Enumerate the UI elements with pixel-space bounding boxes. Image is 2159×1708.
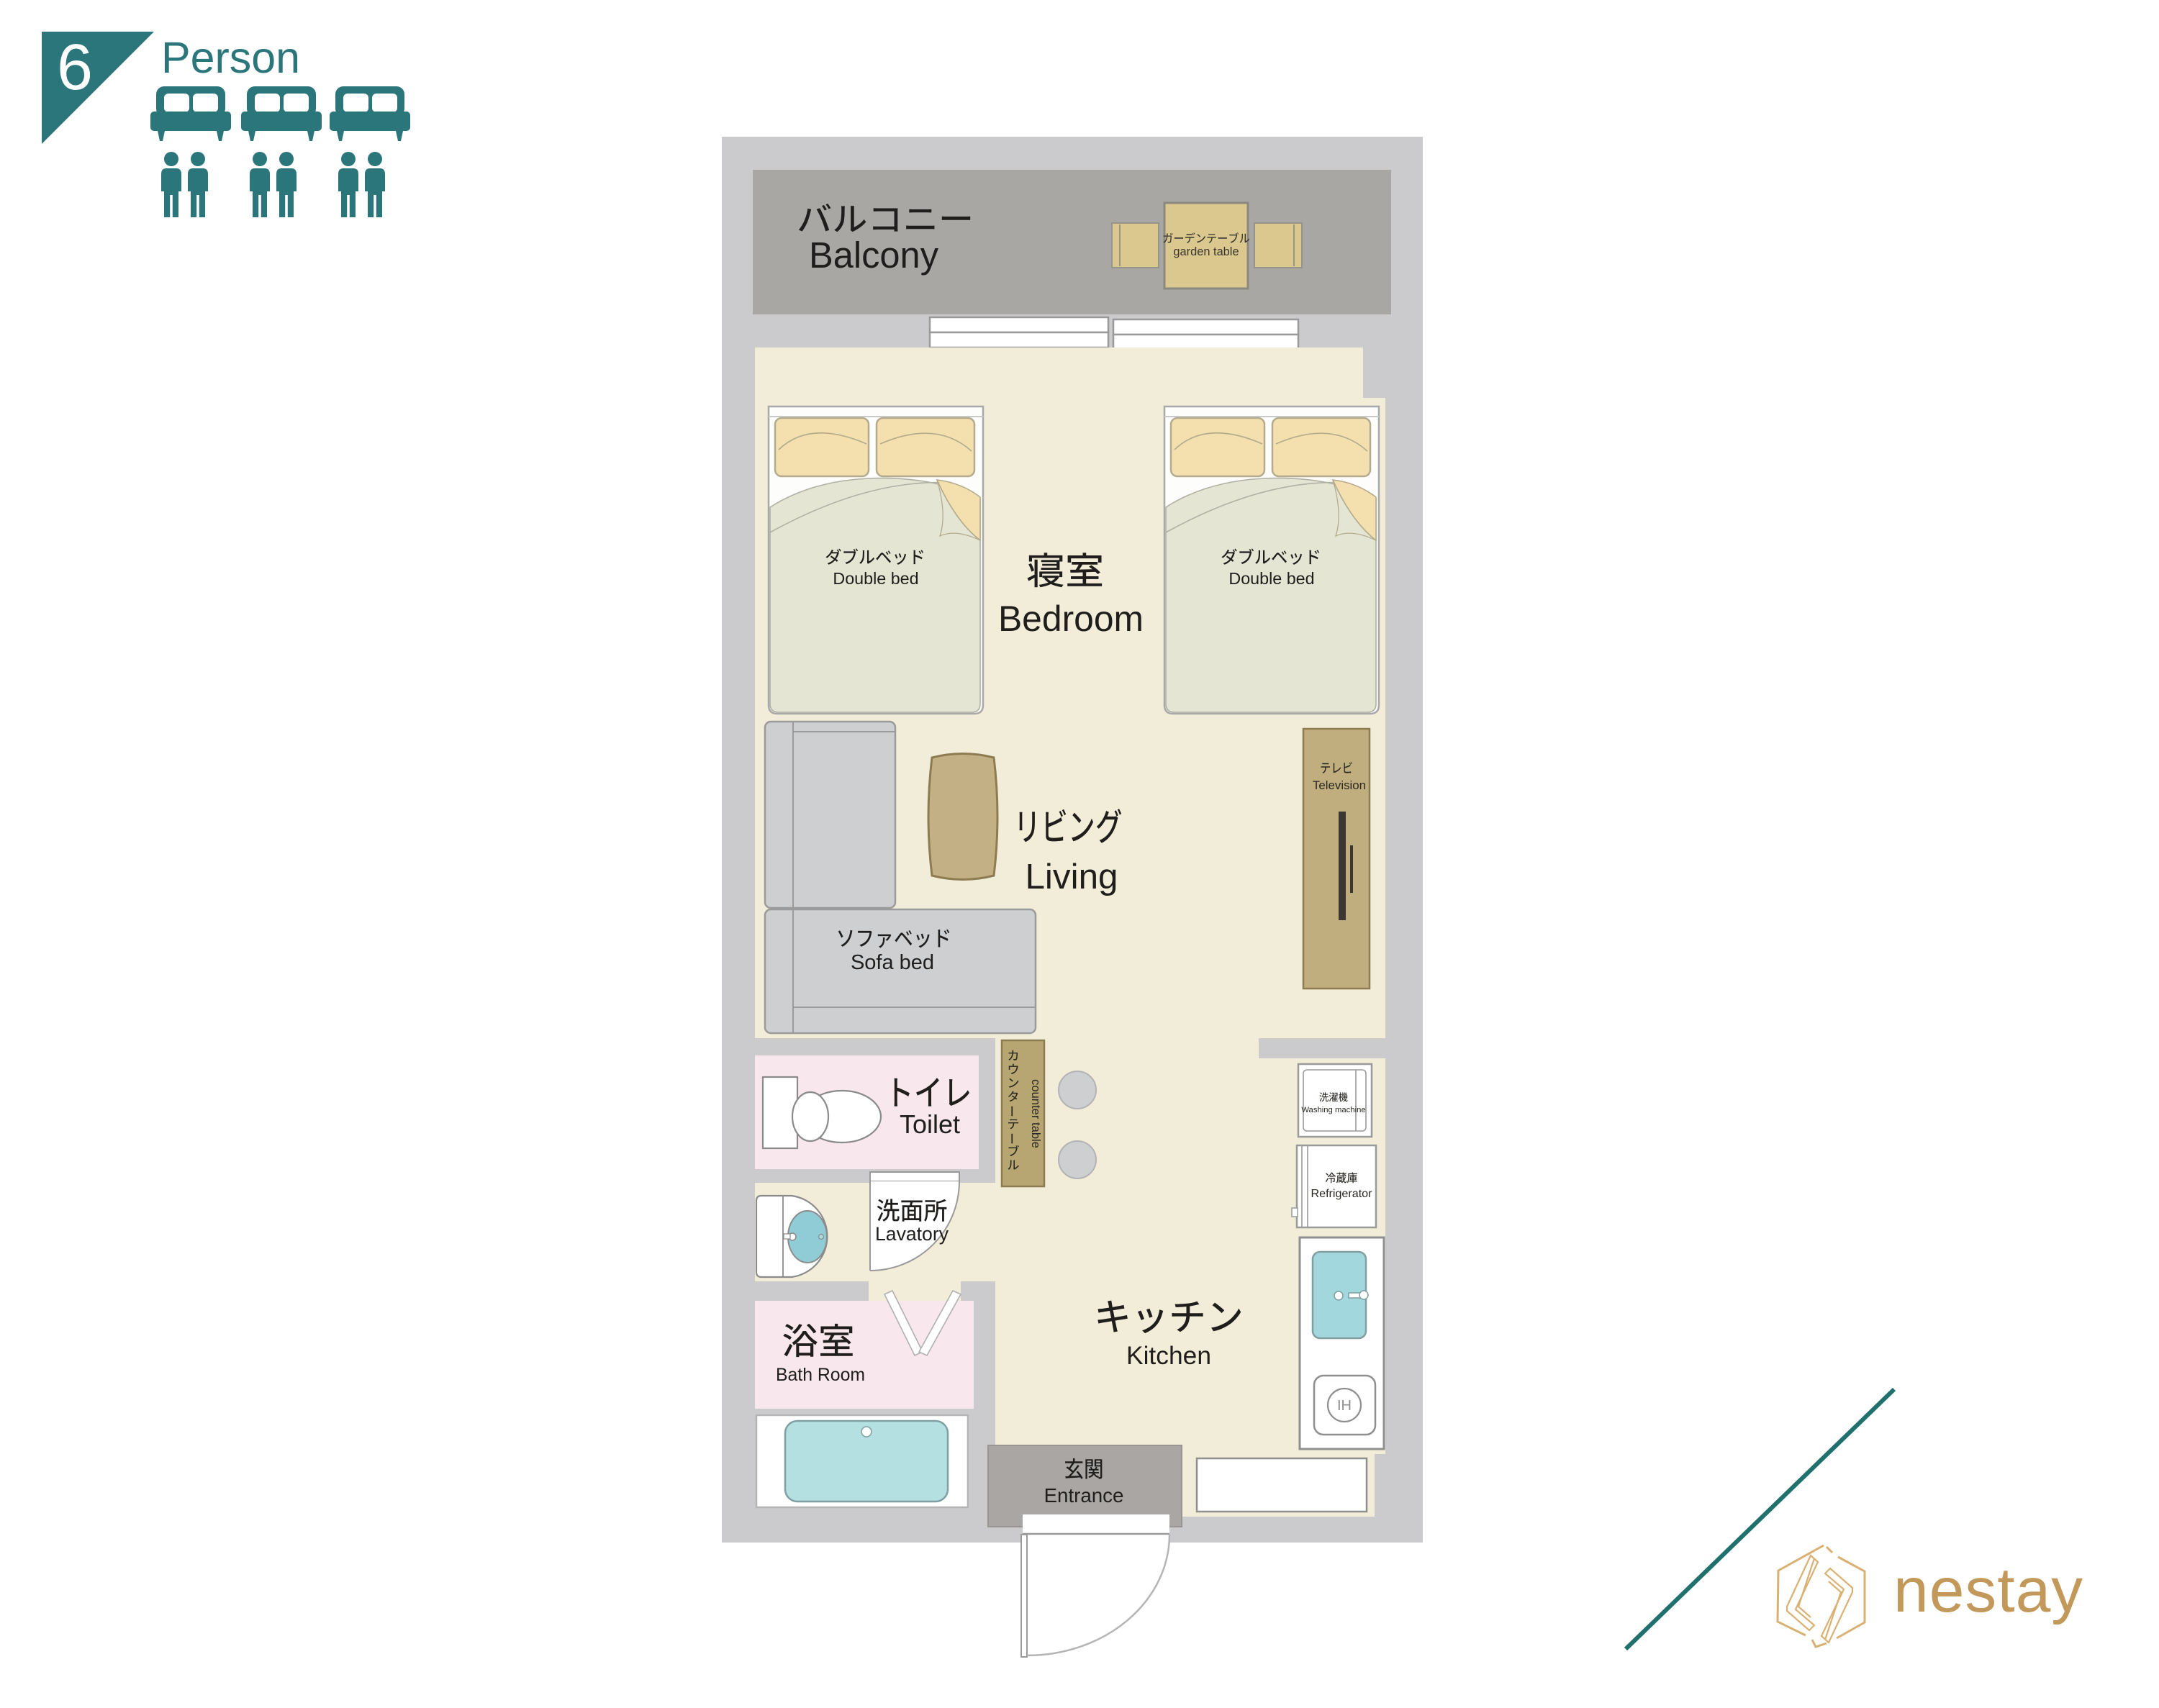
svg-text:nestay: nestay (1893, 1555, 2083, 1625)
svg-text:Bedroom: Bedroom (998, 599, 1144, 639)
svg-text:Double bed: Double bed (1228, 569, 1314, 588)
svg-text:counter table: counter table (1029, 1079, 1043, 1148)
svg-text:6: 6 (57, 32, 93, 104)
svg-text:Toilet: Toilet (900, 1109, 960, 1139)
svg-text:Entrance: Entrance (1044, 1484, 1124, 1507)
svg-text:Person: Person (161, 33, 300, 82)
svg-text:Kitchen: Kitchen (1126, 1341, 1211, 1370)
svg-text:Washing machine: Washing machine (1301, 1106, 1365, 1114)
svg-text:garden table: garden table (1173, 245, 1239, 258)
svg-text:Bath Room: Bath Room (776, 1366, 865, 1385)
svg-text:Television: Television (1313, 778, 1366, 792)
svg-text:Balcony: Balcony (809, 235, 939, 276)
svg-text:Refrigerator: Refrigerator (1311, 1187, 1373, 1200)
svg-text:Living: Living (1025, 857, 1118, 896)
svg-text:Double bed: Double bed (833, 569, 918, 588)
svg-text:Lavatory: Lavatory (875, 1223, 949, 1245)
svg-text:Sofa bed: Sofa bed (851, 951, 934, 974)
svg-text:IH: IH (1337, 1398, 1352, 1414)
